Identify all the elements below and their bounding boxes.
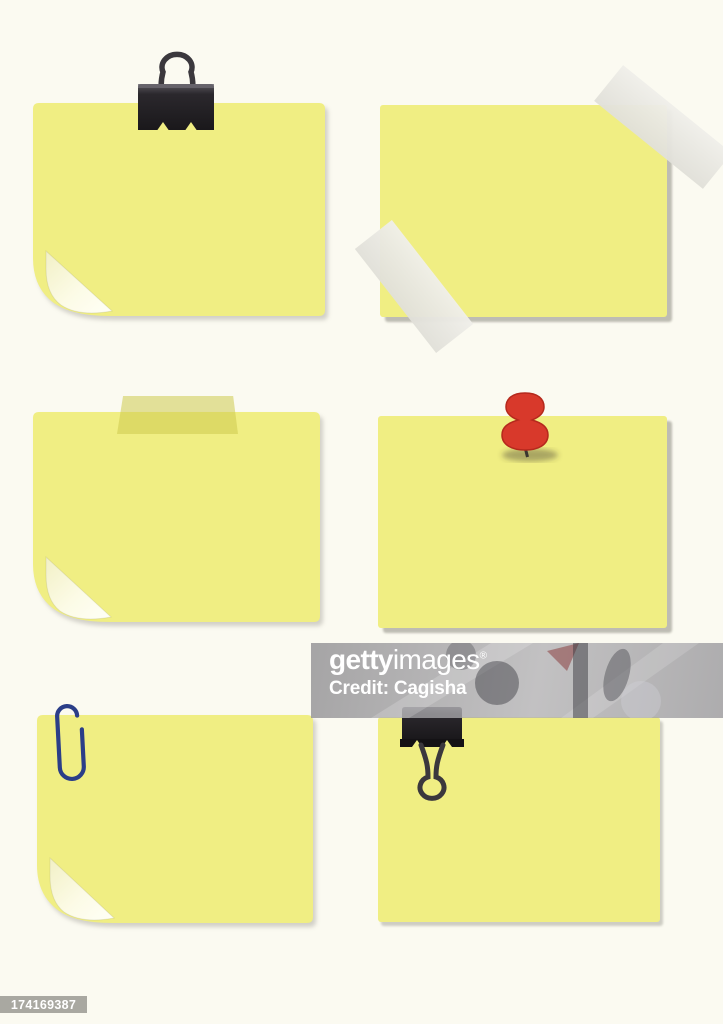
push-pin-icon	[480, 391, 570, 471]
image-id-badge: 174169387	[0, 996, 87, 1013]
sticky-note-middle-left	[33, 412, 320, 622]
watermark-credit: Credit: Cagisha	[329, 678, 486, 700]
binder-clip-lip	[400, 739, 464, 747]
binder-clip-hanging-icon	[387, 703, 477, 813]
watermark-brand-images: images	[393, 644, 480, 675]
binder-clip-body-highlight	[138, 84, 214, 88]
binder-clip-icon	[131, 40, 221, 132]
getty-watermark: gettyimages® Credit: Cagisha	[311, 643, 723, 718]
push-pin-head	[502, 393, 548, 450]
binder-clip-body	[138, 84, 214, 130]
watermark-shape	[573, 643, 588, 718]
tape-strip-icon	[117, 396, 238, 434]
stock-image-canvas: gettyimages® Credit: Cagisha 174169387	[0, 0, 723, 1024]
registered-mark: ®	[480, 651, 487, 662]
paper-clip-wire	[57, 705, 85, 779]
sticky-note-top-left	[33, 103, 325, 316]
watermark-text-block: gettyimages® Credit: Cagisha	[329, 644, 486, 700]
paper-clip-icon	[48, 703, 93, 800]
watermark-brand-getty: getty	[329, 644, 393, 675]
watermark-brand: gettyimages®	[329, 644, 486, 676]
binder-clip-handle	[420, 745, 444, 798]
